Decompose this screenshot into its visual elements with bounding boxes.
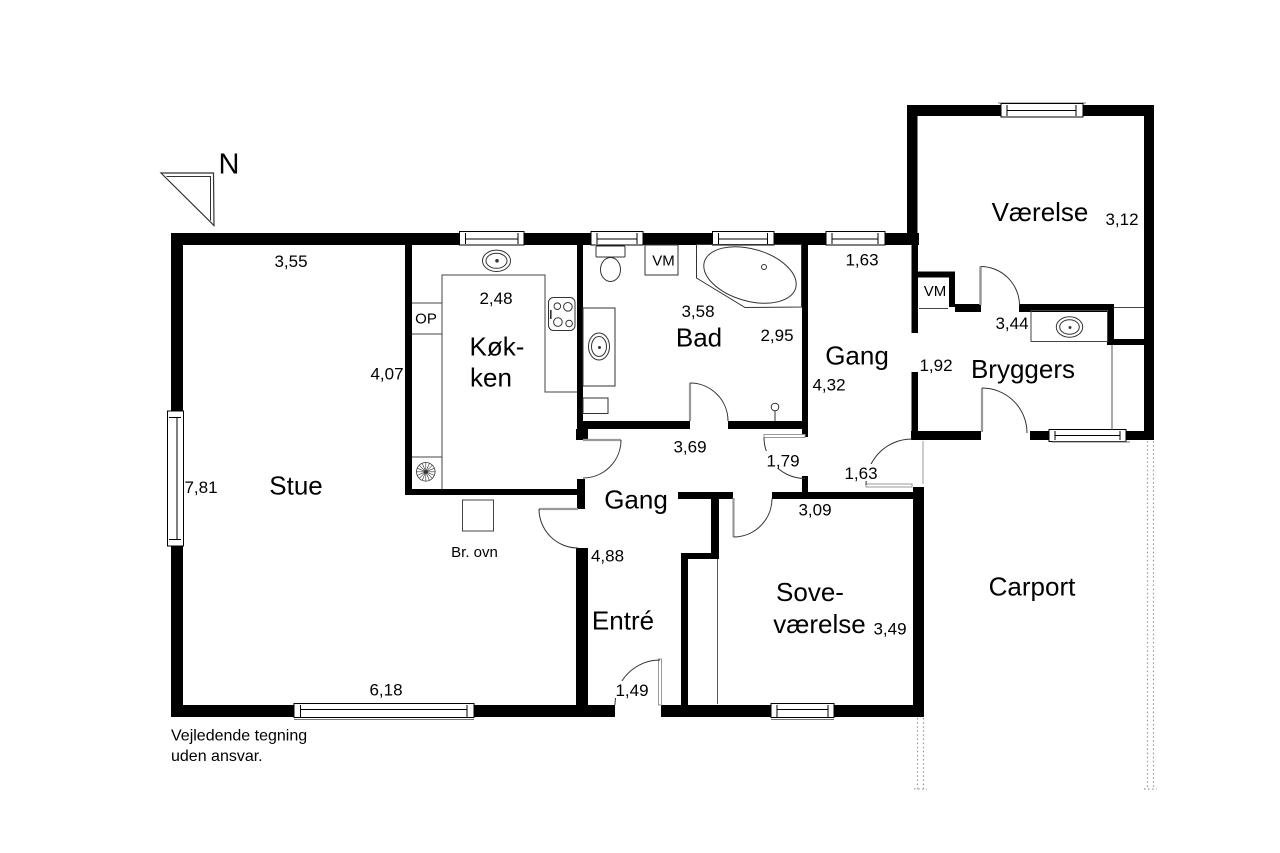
svg-text:ken: ken — [470, 363, 512, 393]
svg-text:Vejledende tegning: Vejledende tegning — [171, 728, 307, 745]
svg-text:Værelse: Værelse — [992, 197, 1089, 227]
svg-text:Br. ovn: Br. ovn — [451, 544, 498, 561]
svg-text:3,09: 3,09 — [798, 501, 831, 520]
svg-text:uden ansvar.: uden ansvar. — [171, 748, 263, 765]
svg-text:Stue: Stue — [269, 471, 323, 501]
svg-text:1,92: 1,92 — [919, 356, 952, 375]
svg-text:4,32: 4,32 — [812, 376, 845, 395]
svg-text:3,49: 3,49 — [873, 620, 906, 639]
svg-text:2,95: 2,95 — [760, 326, 793, 345]
svg-text:VM: VM — [652, 253, 675, 270]
svg-text:Gang: Gang — [604, 485, 668, 515]
svg-text:værelse: værelse — [773, 609, 865, 639]
svg-text:6,18: 6,18 — [369, 681, 402, 700]
svg-text:3,44: 3,44 — [995, 314, 1028, 333]
svg-text:3,55: 3,55 — [274, 252, 307, 271]
svg-text:2,48: 2,48 — [479, 289, 512, 308]
svg-text:Bryggers: Bryggers — [971, 354, 1075, 384]
svg-text:N: N — [219, 149, 240, 181]
svg-text:3,58: 3,58 — [681, 302, 714, 321]
svg-text:Entré: Entré — [592, 606, 654, 636]
svg-text:1,49: 1,49 — [615, 681, 648, 700]
svg-text:OP: OP — [415, 311, 437, 328]
svg-text:Køk-: Køk- — [470, 332, 525, 362]
svg-text:3,12: 3,12 — [1105, 210, 1138, 229]
svg-text:7,81: 7,81 — [184, 478, 217, 497]
svg-text:VM: VM — [924, 283, 947, 300]
svg-text:4,88: 4,88 — [591, 547, 624, 566]
svg-text:1,79: 1,79 — [766, 452, 799, 471]
svg-text:1,63: 1,63 — [845, 251, 878, 270]
svg-text:Carport: Carport — [989, 572, 1076, 602]
svg-text:Bad: Bad — [676, 323, 722, 353]
svg-text:Sove-: Sove- — [776, 577, 844, 607]
svg-text:3,69: 3,69 — [673, 438, 706, 457]
svg-text:4,07: 4,07 — [370, 365, 403, 384]
svg-text:Gang: Gang — [825, 341, 889, 371]
svg-text:1,63: 1,63 — [844, 464, 877, 483]
